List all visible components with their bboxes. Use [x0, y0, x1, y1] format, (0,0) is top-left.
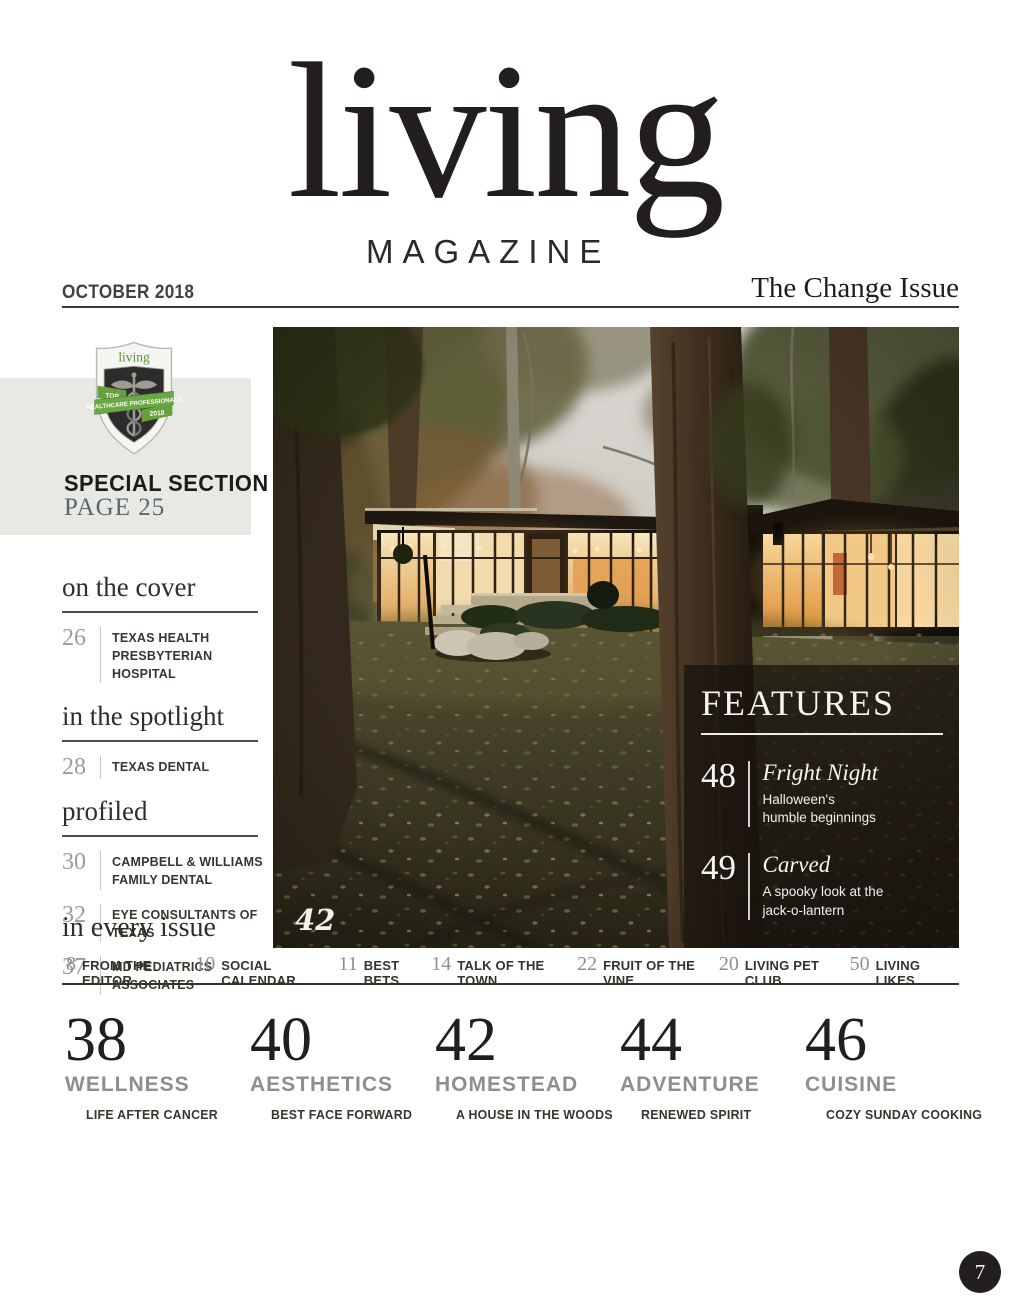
department-page: 42	[435, 1012, 620, 1069]
photo-page-label: 42	[295, 903, 335, 937]
feature-entry: 48 Fright Night Halloween's humble begin…	[701, 759, 943, 827]
feature-description-line: Halloween's	[763, 791, 879, 809]
features-rule	[701, 733, 943, 735]
badge-ribbon-year: 2018	[149, 410, 165, 418]
toc-entry: 28 TEXAS DENTAL	[62, 755, 267, 779]
issue-date: OCTOBER 2018	[62, 282, 194, 304]
feature-description-line: humble beginnings	[763, 809, 879, 827]
section-rule	[62, 740, 258, 742]
toc-entry-divider	[100, 627, 101, 683]
department-page: 38	[65, 1012, 250, 1069]
feature-text: Carved A spooky look at the jack-o-lante…	[763, 851, 884, 919]
department-category: WELLNESS	[65, 1073, 250, 1097]
strip-entry-page: 8	[66, 953, 76, 976]
department-category: AESTHETICS	[250, 1073, 435, 1097]
strip-entry-page: 20	[719, 953, 739, 976]
department-category: CUISINE	[805, 1073, 990, 1097]
magazine-logo: living	[0, 34, 1010, 228]
magazine-toc-page: living MAGAZINE OCTOBER 2018 The Change …	[0, 0, 1024, 1312]
feature-divider	[748, 853, 750, 919]
departments-row: 38 WELLNESS LIFE AFTER CANCER 40 AESTHET…	[62, 1012, 974, 1122]
department-page: 46	[805, 1012, 990, 1069]
feature-title: Fright Night	[763, 759, 879, 784]
toc-entry-page: 26	[62, 626, 94, 650]
department-subtitle: BEST FACE FORWARD	[271, 1107, 427, 1122]
department: 40 AESTHETICS BEST FACE FORWARD	[250, 1012, 435, 1122]
toc-entry-page: 28	[62, 755, 94, 779]
strip-entry-page: 14	[431, 953, 451, 976]
department-category: HOMESTEAD	[435, 1073, 620, 1097]
issue-title: The Change Issue	[751, 272, 959, 305]
page-number: 7	[975, 1260, 986, 1285]
toc-entry-title: TEXAS DENTAL	[112, 755, 267, 777]
toc-entry-divider	[100, 756, 101, 779]
section-rule	[62, 611, 258, 613]
features-heading: FEATURES	[701, 685, 943, 721]
badge-brand: living	[118, 350, 150, 365]
cover-photo: FEATURES 48 Fright Night Halloween's hum…	[273, 327, 959, 948]
department-subtitle: RENEWED SPIRIT	[641, 1107, 797, 1122]
feature-page: 48	[701, 759, 736, 827]
feature-title: Carved	[763, 851, 884, 876]
feature-description: Halloween's humble beginnings	[763, 791, 879, 827]
feature-divider	[748, 761, 750, 827]
special-section-page: PAGE 25	[64, 494, 165, 522]
feature-description: A spooky look at the jack-o-lantern	[763, 883, 884, 919]
feature-description-line: jack-o-lantern	[763, 902, 884, 920]
department: 42 HOMESTEAD A HOUSE IN THE WOODS	[435, 1012, 620, 1122]
department-page: 44	[620, 1012, 805, 1069]
strip-entry-page: 22	[577, 953, 597, 976]
every-issue-heading: in every issue	[62, 912, 216, 944]
section-rule	[62, 835, 258, 837]
top-healthcare-professionals-badge-icon: living TOP HEALTHCARE PROFESSIONALS 2018	[86, 338, 182, 462]
toc-entry: 26 TEXAS HEALTH PRESBYTERIAN HOSPITAL	[62, 626, 267, 683]
department: 44 ADVENTURE RENEWED SPIRIT	[620, 1012, 805, 1122]
strip-entry-page: 50	[850, 953, 870, 976]
feature-description-line: A spooky look at the	[763, 883, 884, 901]
department-subtitle: A HOUSE IN THE WOODS	[456, 1107, 612, 1122]
section-heading: in the spotlight	[62, 701, 267, 732]
strip-entry-page: 10	[195, 953, 215, 976]
section-heading: on the cover	[62, 572, 267, 603]
masthead-rule	[62, 306, 959, 308]
toc-entry-divider	[100, 851, 101, 890]
department-subtitle: COZY SUNDAY COOKING	[826, 1107, 982, 1122]
department: 38 WELLNESS LIFE AFTER CANCER	[65, 1012, 250, 1122]
department-subtitle: LIFE AFTER CANCER	[86, 1107, 242, 1122]
department-category: ADVENTURE	[620, 1073, 805, 1097]
toc-entry-title: TEXAS HEALTH PRESBYTERIAN HOSPITAL	[112, 626, 267, 683]
toc-entry-page: 30	[62, 850, 94, 874]
strip-entry-page: 11	[338, 953, 357, 976]
department-page: 40	[250, 1012, 435, 1069]
strip-rule	[62, 983, 959, 985]
features-panel: FEATURES 48 Fright Night Halloween's hum…	[684, 665, 959, 948]
feature-text: Fright Night Halloween's humble beginnin…	[763, 759, 879, 827]
special-section-title: SPECIAL SECTION	[64, 470, 269, 497]
feature-page: 49	[701, 851, 736, 919]
feature-entry: 49 Carved A spooky look at the jack-o-la…	[701, 851, 943, 919]
toc-entry: 30 CAMPBELL & WILLIAMS FAMILY DENTAL	[62, 850, 267, 890]
page-number-badge: 7	[959, 1251, 1001, 1293]
toc-entry-title: CAMPBELL & WILLIAMS FAMILY DENTAL	[112, 850, 267, 890]
department: 46 CUISINE COZY SUNDAY COOKING	[805, 1012, 990, 1122]
section-heading: profiled	[62, 796, 267, 827]
magazine-logo-subtitle: MAGAZINE	[366, 233, 610, 271]
